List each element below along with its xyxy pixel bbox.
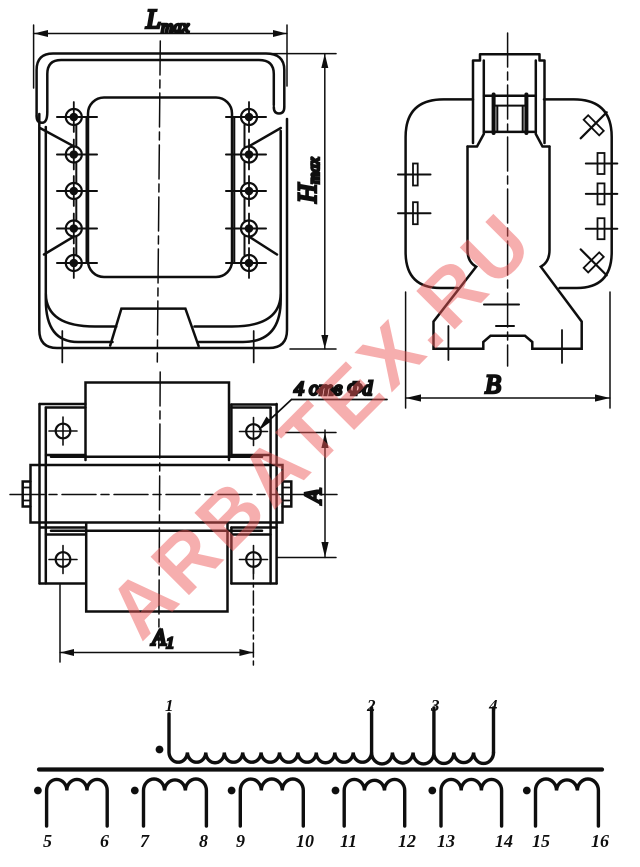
svg-text:3: 3 <box>430 696 440 715</box>
svg-text:В: В <box>485 370 501 399</box>
svg-text:9: 9 <box>236 831 245 851</box>
svg-text:Hmax: Hmax <box>293 157 323 203</box>
svg-text:8: 8 <box>199 831 208 851</box>
svg-text:11: 11 <box>340 831 357 851</box>
svg-text:7: 7 <box>140 831 150 851</box>
svg-text:4: 4 <box>488 696 498 715</box>
svg-text:10: 10 <box>296 831 314 851</box>
svg-text:12: 12 <box>398 831 416 851</box>
svg-text:5: 5 <box>43 831 52 851</box>
svg-text:16: 16 <box>591 831 609 851</box>
svg-text:1: 1 <box>165 696 174 715</box>
svg-text:14: 14 <box>495 831 513 851</box>
svg-text:13: 13 <box>437 831 455 851</box>
svg-text:6: 6 <box>100 831 109 851</box>
svg-text:15: 15 <box>532 831 550 851</box>
svg-text:2: 2 <box>366 696 376 715</box>
svg-text:Lmax: Lmax <box>145 4 190 36</box>
